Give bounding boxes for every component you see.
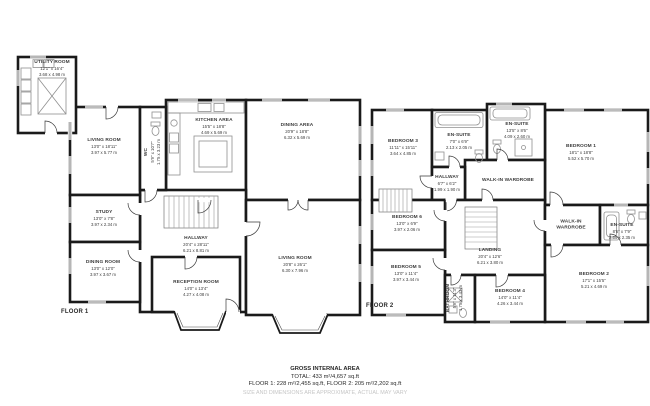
window-icon	[212, 98, 226, 102]
window-icon	[68, 156, 72, 174]
bay-window-icon	[174, 309, 226, 330]
room-dim-metric: 2.13 x 2.05 m	[446, 145, 472, 151]
window-icon	[308, 98, 330, 102]
window-icon	[564, 108, 584, 112]
room-dim-metric: 1.75 x 3.43 m	[458, 284, 464, 313]
window-icon	[178, 98, 198, 102]
window-icon	[606, 320, 624, 324]
room-label-bedroom-1: BEDROOM 1 18'1" x 18'8" 5.52 x 5.70 m	[566, 144, 596, 162]
room-label-en-suite-3: EN-SUITE 8'6" x 7'9" 2.59 x 2.35 m	[609, 223, 635, 241]
window-icon	[646, 266, 650, 286]
window-icon	[646, 132, 650, 152]
room-dim-metric: 6.21 x 8.81 m	[183, 248, 209, 254]
footer: GROSS INTERNAL AREA TOTAL: 433 m²/4,657 …	[0, 366, 650, 396]
room-dim-metric: 3.97 x 5.77 m	[87, 150, 120, 156]
window-icon	[614, 203, 628, 207]
room-label-bathroom: BATHROOM 5'9" x 11'3" 1.75 x 3.43 m	[446, 284, 464, 313]
gross-internal-area-title: GROSS INTERNAL AREA	[0, 366, 650, 374]
room-dim-metric: 2.59 x 2.35 m	[609, 235, 635, 241]
room-dim-metric: 4.09 x 2.60 m	[504, 134, 530, 140]
bay-window-icon	[272, 312, 328, 333]
disclaimer: SIZE AND DIMENSIONS ARE APPROXIMATE, ACT…	[0, 390, 650, 396]
room-dim-metric: 3.64 x 4.85 m	[388, 151, 418, 157]
room-dim-metric: 3.97 x 2.06 m	[392, 227, 422, 233]
room-label-reception-room: RECEPTION ROOM 14'0" x 13'4" 4.27 x 4.08…	[173, 280, 219, 298]
room-dim-metric: 6.21 x 3.80 m	[477, 260, 503, 266]
room-label-hallway-2: HALLWAY 6'7" x 6'2" 1.99 x 1.90 m	[434, 175, 460, 193]
window-icon	[386, 313, 406, 317]
room-label-landing: LANDING 20'4" x 12'6" 6.21 x 3.80 m	[477, 248, 503, 266]
window-icon	[566, 320, 586, 324]
window-icon	[88, 300, 106, 304]
staircase-icon	[379, 189, 412, 212]
window-icon	[370, 160, 374, 176]
window-icon	[85, 105, 103, 109]
floorplan-drawing	[0, 0, 650, 406]
room-label-bedroom-6: BEDROOM 6 13'0" x 6'9" 3.97 x 2.06 m	[392, 215, 422, 233]
window-icon	[496, 102, 512, 106]
room-dim-metric: 3.68 x 4.98 m	[34, 72, 70, 78]
window-icon	[370, 126, 374, 144]
window-icon	[370, 214, 374, 230]
window-icon	[358, 264, 362, 282]
floor2-label: FLOOR 2	[366, 303, 393, 309]
staircase-icon	[465, 207, 497, 249]
room-label-wc: WC 5'9" x 10'7" 1.75 x 3.23 m	[144, 139, 162, 165]
window-icon	[16, 70, 20, 86]
room-dim-metric: 5.52 x 5.70 m	[566, 156, 596, 162]
room-label-bedroom-4: BEDROOM 4 14'0" x 11'4" 4.26 x 3.44 m	[495, 289, 525, 307]
room-label-bedroom-3: BEDROOM 3 11'11" x 15'11" 3.64 x 4.85 m	[388, 139, 418, 157]
room-label-living-room: LIVING ROOM 13'0" x 18'11" 3.97 x 5.77 m	[87, 138, 120, 156]
room-dim-metric: 4.27 x 4.08 m	[173, 292, 219, 298]
floorplan-canvas: UTILITY ROOM 12'1" x 16'4" 3.68 x 4.98 m…	[0, 0, 650, 406]
room-label-bedroom-5: BEDROOM 5 13'0" x 11'4" 3.97 x 3.44 m	[391, 265, 421, 283]
room-dim-metric: 4.69 x 5.69 m	[195, 130, 232, 136]
room-dim-metric: 4.26 x 3.44 m	[495, 301, 525, 307]
window-icon	[68, 122, 72, 140]
room-label-utility: UTILITY ROOM 12'1" x 16'4" 3.68 x 4.98 m	[34, 60, 70, 78]
floor1-walls	[18, 57, 360, 315]
window-icon	[604, 108, 622, 112]
floor1-label: FLOOR 1	[61, 309, 88, 315]
window-icon	[358, 160, 362, 176]
room-name: WALK-IN WARDROBE	[482, 178, 534, 184]
window-icon	[30, 55, 46, 59]
room-label-dining-area: DINING AREA 20'9" x 18'8" 6.32 x 5.69 m	[281, 123, 314, 141]
window-icon	[358, 226, 362, 244]
window-icon	[646, 168, 650, 184]
room-dim-metric: 1.99 x 1.90 m	[434, 187, 460, 193]
room-label-study: STUDY 13'0" x 7'8" 3.97 x 2.34 m	[91, 210, 117, 228]
room-label-hallway: HALLWAY 20'4" x 28'11" 6.21 x 8.81 m	[183, 236, 209, 254]
room-label-en-suite-1: EN-SUITE 7'0" x 6'9" 2.13 x 2.05 m	[446, 133, 472, 151]
room-dim-metric: 6.30 x 7.96 m	[278, 268, 311, 274]
room-label-dining-room: DINING ROOM 13'0" x 12'0" 3.97 x 3.67 m	[86, 260, 120, 278]
room-label-walk-in-wardrobe-2: WALK-IN WARDROBE	[554, 220, 588, 233]
room-label-kitchen-area: KITCHEN AREA 15'5" x 18'8" 4.69 x 5.69 m	[195, 118, 232, 136]
floor-breakdown: FLOOR 1: 228 m²/2,455 sq.ft, FLOOR 2: 20…	[0, 381, 650, 389]
room-label-en-suite-2: EN-SUITE 13'5" x 8'6" 4.09 x 2.60 m	[504, 122, 530, 140]
window-icon	[490, 320, 510, 324]
window-icon	[370, 266, 374, 284]
room-label-living-room-2: LIVING ROOM 20'8" x 26'1" 6.30 x 7.96 m	[278, 256, 311, 274]
window-icon	[386, 108, 404, 112]
window-icon	[358, 126, 362, 144]
room-dim-metric: 6.32 x 5.69 m	[281, 135, 314, 141]
room-label-bedroom-2: BEDROOM 2 17'1" x 15'5" 5.21 x 4.69 m	[579, 272, 609, 290]
window-icon	[68, 207, 72, 223]
room-dim-metric: 3.97 x 3.67 m	[86, 272, 120, 278]
window-icon	[68, 258, 72, 274]
room-dim-metric: 1.75 x 3.23 m	[156, 139, 162, 165]
room-name: WALK-IN WARDROBE	[554, 220, 588, 233]
room-label-walk-in-wardrobe-1: WALK-IN WARDROBE	[482, 178, 534, 184]
room-dim-metric: 3.97 x 2.34 m	[91, 222, 117, 228]
window-icon	[262, 98, 282, 102]
room-dim-metric: 3.97 x 3.44 m	[391, 277, 421, 283]
total-area: TOTAL: 433 m²/4,657 sq.ft	[0, 374, 650, 382]
room-dim-metric: 5.21 x 4.69 m	[579, 284, 609, 290]
